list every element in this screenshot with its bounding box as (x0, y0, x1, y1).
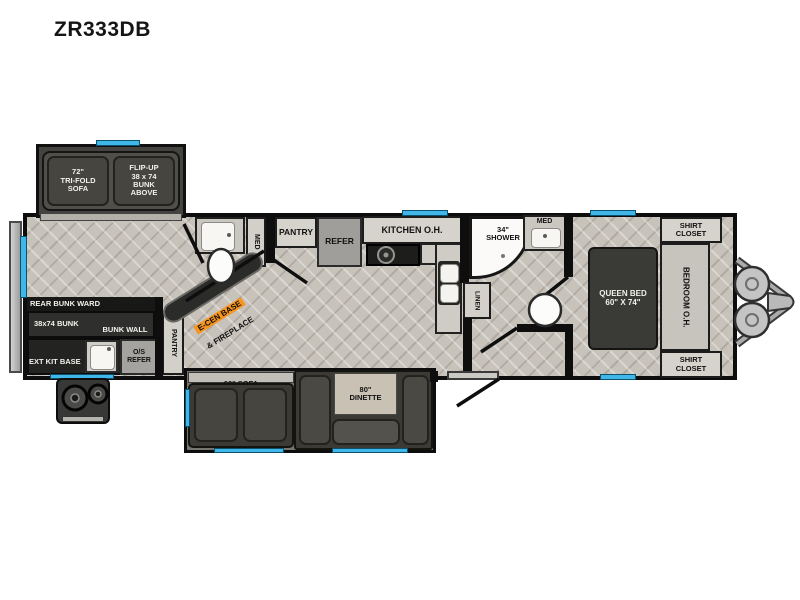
propane-tank (735, 267, 769, 301)
floorplan-page: ZR333DB 72" TRI-FOLD SOFA FLIP-UP 38 x 7… (0, 0, 800, 600)
rear-bath-toilet (208, 249, 234, 283)
door-swing (184, 224, 203, 263)
hitch-and-propane-tanks (735, 260, 794, 344)
entry-door-swing (457, 379, 499, 406)
hitch-coupler (768, 293, 794, 311)
bath-toilet (529, 294, 561, 326)
griddle-burner-center (95, 391, 101, 397)
plan-linework (0, 0, 800, 600)
door-swings (184, 224, 568, 406)
propane-tank (735, 303, 769, 337)
door-swing (481, 328, 517, 352)
griddle-burners (63, 385, 107, 410)
stove-burner-center (384, 253, 389, 258)
griddle-burner-center (71, 394, 79, 402)
door-swing (271, 258, 307, 283)
